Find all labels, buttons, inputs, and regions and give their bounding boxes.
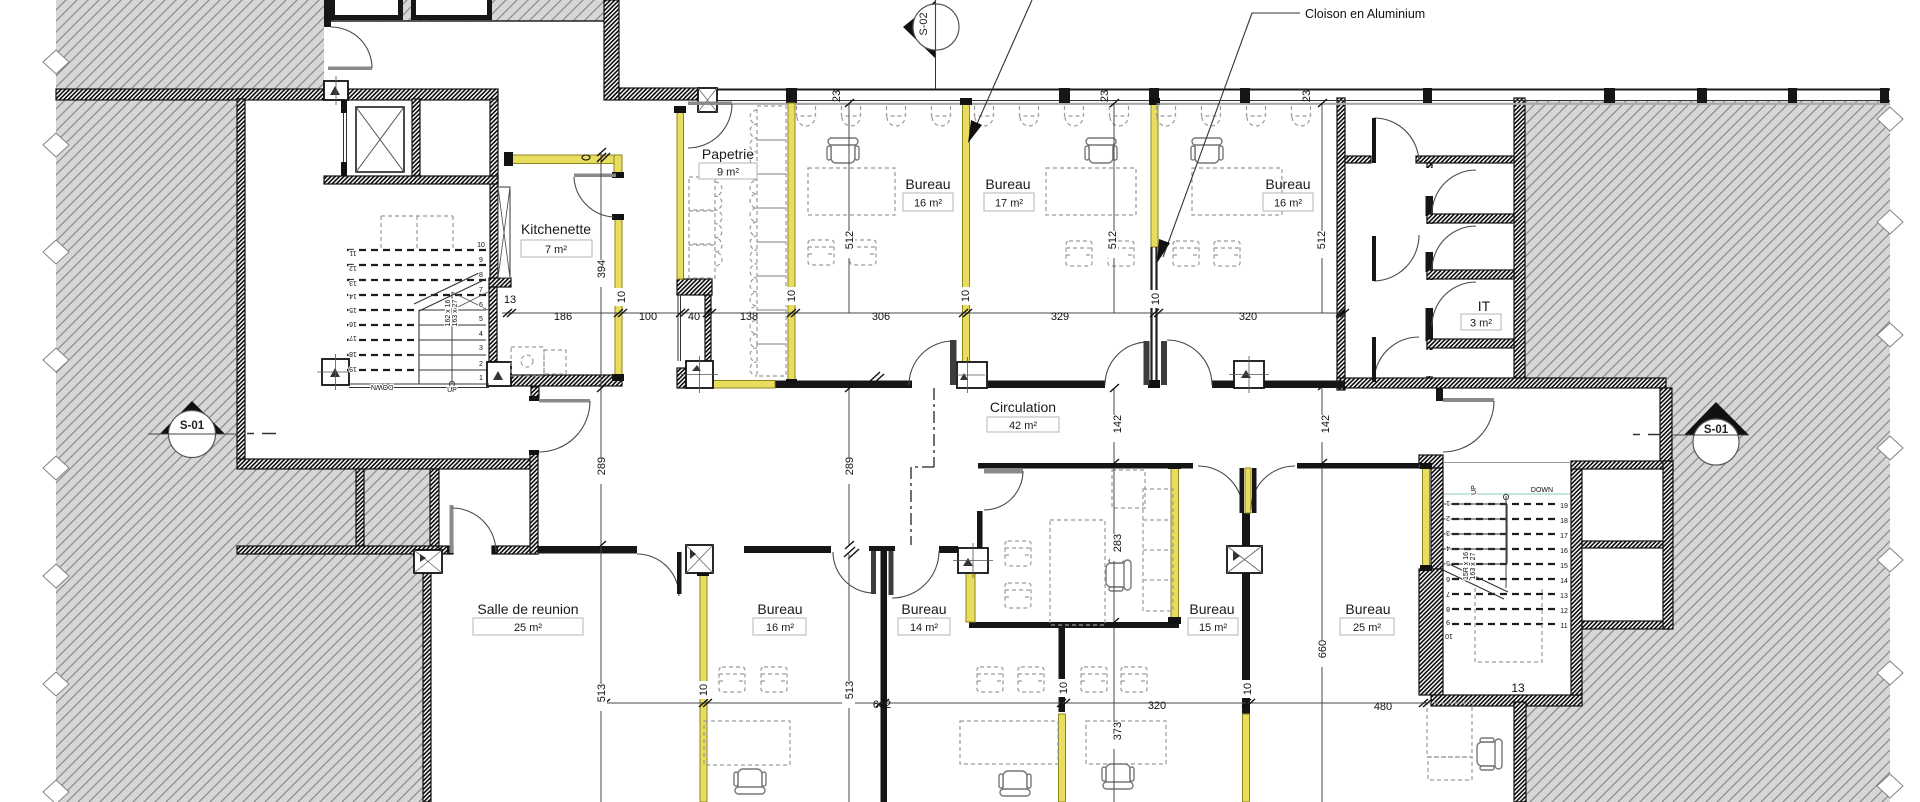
svg-text:23: 23: [831, 90, 843, 102]
svg-text:IT: IT: [1478, 298, 1491, 314]
svg-text:3: 3: [479, 345, 483, 352]
svg-text:15 m²: 15 m²: [1199, 622, 1227, 634]
svg-text:18: 18: [1560, 518, 1568, 525]
svg-text:162 x 16: 162 x 16: [445, 299, 452, 326]
svg-text:8: 8: [479, 272, 483, 279]
svg-text:13: 13: [1511, 681, 1525, 695]
svg-text:289: 289: [844, 457, 856, 475]
svg-text:10: 10: [786, 290, 798, 302]
svg-text:13: 13: [504, 294, 516, 306]
svg-text:7: 7: [479, 287, 483, 294]
svg-text:Circulation: Circulation: [990, 399, 1056, 415]
svg-text:660: 660: [1317, 640, 1329, 658]
svg-text:10: 10: [698, 684, 710, 696]
svg-text:Bureau: Bureau: [1189, 601, 1234, 617]
svg-text:11: 11: [1560, 623, 1567, 630]
svg-text:163 x 27: 163 x 27: [452, 299, 459, 326]
svg-text:17: 17: [349, 334, 357, 341]
svg-text:10: 10: [477, 242, 485, 249]
svg-text:4: 4: [479, 331, 483, 338]
svg-text:100: 100: [639, 311, 657, 323]
svg-text:6: 6: [1446, 575, 1450, 582]
svg-text:16 m²: 16 m²: [1274, 198, 1302, 210]
svg-text:UP: UP: [1471, 485, 1478, 495]
svg-text:9 m²: 9 m²: [717, 167, 739, 179]
svg-text:10: 10: [960, 290, 972, 302]
svg-text:Papetrie: Papetrie: [702, 146, 754, 162]
svg-text:Salle de reunion: Salle de reunion: [477, 601, 578, 617]
svg-text:23: 23: [1099, 90, 1111, 102]
svg-text:17: 17: [1560, 533, 1568, 540]
svg-text:15: 15: [349, 306, 357, 313]
svg-text:10: 10: [1445, 632, 1453, 639]
svg-text:UP: UP: [447, 387, 457, 394]
svg-text:329: 329: [1051, 311, 1069, 323]
svg-text:9: 9: [1446, 618, 1450, 625]
svg-text:10: 10: [1242, 683, 1254, 695]
svg-text:S-01: S-01: [180, 420, 205, 432]
svg-text:16: 16: [1560, 548, 1568, 555]
svg-text:480: 480: [1374, 701, 1392, 713]
svg-text:19: 19: [1560, 503, 1568, 510]
svg-text:9: 9: [479, 257, 483, 264]
svg-text:23: 23: [1301, 90, 1313, 102]
svg-text:Kitchenette: Kitchenette: [521, 221, 591, 237]
svg-text:5: 5: [1446, 559, 1450, 566]
svg-text:4: 4: [1446, 544, 1450, 551]
svg-text:513: 513: [844, 681, 856, 699]
svg-text:S-01: S-01: [1704, 424, 1729, 436]
svg-text:512: 512: [1316, 231, 1328, 249]
svg-text:283: 283: [1112, 534, 1124, 552]
svg-text:2: 2: [479, 361, 483, 368]
svg-text:25 m²: 25 m²: [514, 622, 542, 634]
svg-text:16: 16: [349, 320, 357, 327]
svg-text:1: 1: [479, 375, 483, 382]
svg-text:306: 306: [872, 311, 890, 323]
svg-text:12: 12: [349, 264, 357, 271]
svg-text:Bureau: Bureau: [1265, 176, 1310, 192]
svg-text:Bureau: Bureau: [985, 176, 1030, 192]
svg-text:7: 7: [1446, 590, 1450, 597]
svg-text:138: 138: [740, 311, 758, 323]
svg-text:Bureau: Bureau: [1345, 601, 1390, 617]
svg-text:513: 513: [596, 684, 608, 702]
svg-text:14: 14: [1560, 578, 1568, 585]
svg-text:25 m²: 25 m²: [1353, 622, 1381, 634]
svg-text:142: 142: [1320, 415, 1332, 433]
svg-text:16 m²: 16 m²: [914, 198, 942, 210]
svg-text:3 m²: 3 m²: [1470, 318, 1492, 330]
svg-text:40: 40: [688, 311, 700, 323]
svg-text:163 x 27: 163 x 27: [1470, 552, 1477, 579]
svg-text:Bureau: Bureau: [757, 601, 802, 617]
svg-text:Cloison en Aluminium: Cloison en Aluminium: [1305, 7, 1425, 21]
svg-text:6: 6: [479, 302, 483, 309]
svg-text:14 m²: 14 m²: [910, 622, 938, 634]
svg-text:13: 13: [1560, 593, 1568, 600]
svg-text:186: 186: [554, 311, 572, 323]
svg-text:Bureau: Bureau: [901, 601, 946, 617]
svg-text:2: 2: [1446, 514, 1450, 521]
svg-text:142: 142: [1112, 415, 1124, 433]
svg-text:DOWN: DOWN: [371, 383, 393, 390]
svg-text:373: 373: [1112, 722, 1124, 740]
svg-text:320: 320: [1239, 311, 1257, 323]
svg-text:7 m²: 7 m²: [545, 244, 567, 256]
svg-text:512: 512: [844, 231, 856, 249]
svg-text:5: 5: [479, 316, 483, 323]
svg-text:13: 13: [349, 279, 357, 286]
svg-text:289: 289: [596, 457, 608, 475]
svg-text:DOWN: DOWN: [1531, 487, 1553, 494]
svg-text:11: 11: [349, 249, 356, 256]
svg-text:17 m²: 17 m²: [995, 198, 1023, 210]
svg-text:642: 642: [873, 699, 891, 711]
svg-text:S-02: S-02: [918, 12, 930, 35]
svg-text:10: 10: [1150, 293, 1162, 305]
svg-text:16 m²: 16 m²: [766, 622, 794, 634]
svg-text:8: 8: [1446, 605, 1450, 612]
svg-text:10: 10: [1058, 682, 1070, 694]
svg-text:19: 19: [349, 365, 357, 372]
svg-text:15R x 16: 15R x 16: [1463, 552, 1470, 580]
svg-text:42 m²: 42 m²: [1009, 420, 1037, 432]
svg-text:394: 394: [596, 260, 608, 278]
svg-text:3: 3: [1446, 529, 1450, 536]
svg-text:1: 1: [1446, 499, 1450, 506]
svg-text:18: 18: [349, 350, 357, 357]
svg-text:512: 512: [1107, 231, 1119, 249]
svg-text:320: 320: [1148, 700, 1166, 712]
svg-text:15: 15: [1560, 563, 1568, 570]
svg-text:Bureau: Bureau: [905, 176, 950, 192]
svg-text:10: 10: [616, 291, 628, 303]
svg-text:12: 12: [1560, 608, 1568, 615]
svg-text:14: 14: [349, 292, 357, 299]
